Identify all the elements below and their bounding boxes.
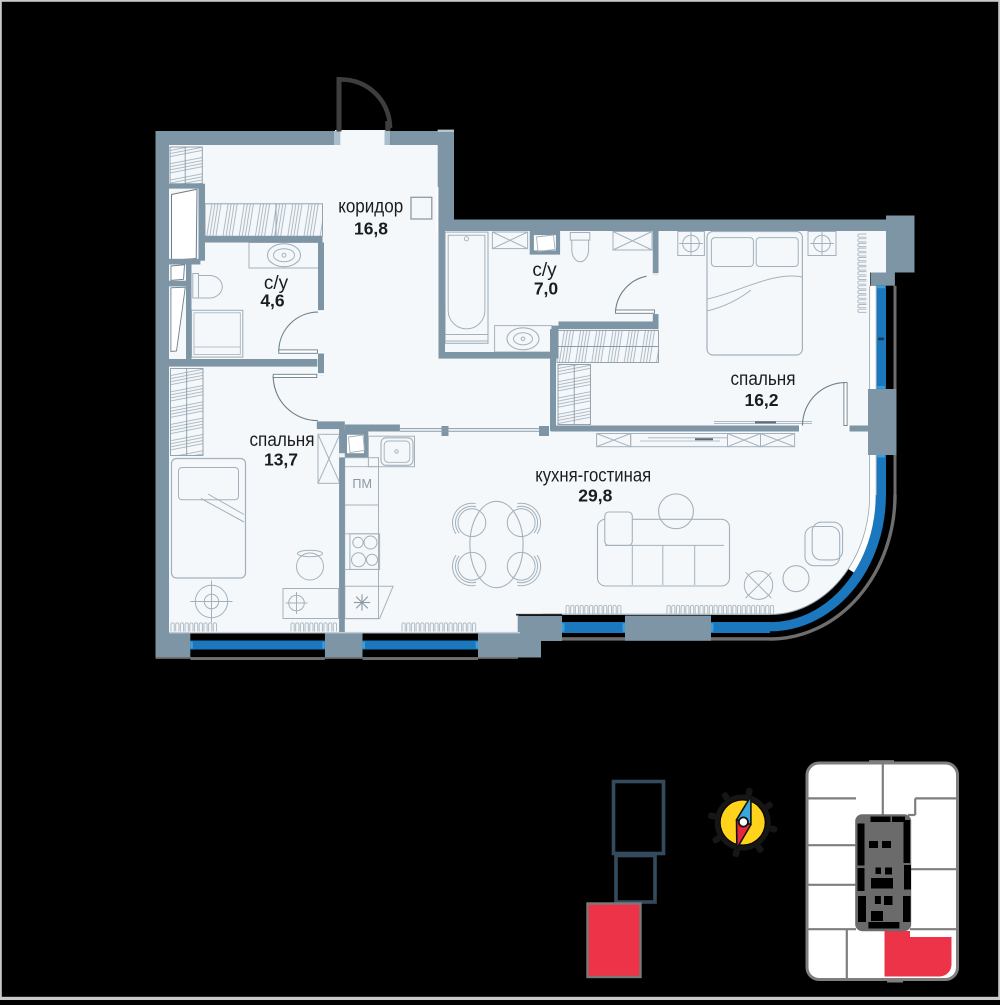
svg-text:13,7: 13,7 <box>264 450 298 470</box>
svg-text:коридор: коридор <box>338 197 403 218</box>
svg-text:ПМ: ПМ <box>352 477 372 491</box>
svg-text:16,2: 16,2 <box>744 390 778 410</box>
svg-text:кухня-гостиная: кухня-гостиная <box>535 466 651 487</box>
svg-text:спальня: спальня <box>731 369 796 390</box>
svg-text:4,6: 4,6 <box>260 291 285 311</box>
svg-text:7,0: 7,0 <box>534 279 559 299</box>
svg-text:спальня: спальня <box>250 430 315 451</box>
svg-text:16,8: 16,8 <box>354 219 388 239</box>
svg-text:29,8: 29,8 <box>578 486 612 506</box>
